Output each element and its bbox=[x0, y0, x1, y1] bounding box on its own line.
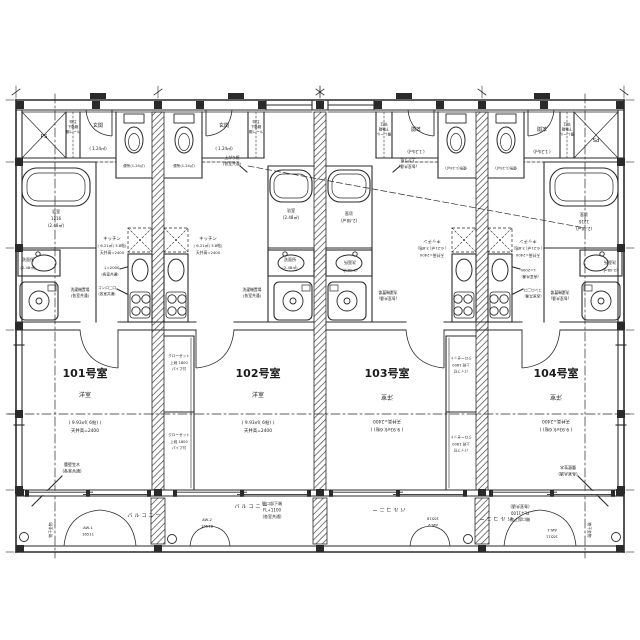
u102-kitchen-ceiling: 天井高=2400 bbox=[196, 250, 221, 255]
sill-note-right-line1: 開口部下端 bbox=[510, 517, 530, 523]
u104-bath-area: (2.48㎡) bbox=[576, 226, 592, 232]
u102-wash-name: 洗面所 bbox=[284, 256, 296, 262]
window-tag-aw1-left: AW-1 bbox=[83, 525, 93, 530]
u104-toilet-label: 便所(1.24㎡) bbox=[495, 166, 517, 171]
sill-note-right-line3: (各室共通) bbox=[510, 504, 530, 510]
unit102-room-type: 洋室 bbox=[252, 391, 264, 399]
u102-toilet-label: 便所(1.24㎡) bbox=[173, 163, 195, 168]
u101-kitchen-area: ( 6.21㎡( 3.8帖) bbox=[98, 243, 127, 248]
agari-note-left-line1: 上がり框 bbox=[224, 155, 239, 160]
u103-bath-area: (2.48㎡) bbox=[341, 218, 357, 224]
unit104-room-type: 洋室 bbox=[550, 393, 562, 401]
u103-shoebox-line3: 棚レール bbox=[376, 132, 391, 137]
unit103-number: 103号室 bbox=[365, 366, 410, 380]
parapet-note-right-line2: (各室共通) bbox=[558, 472, 578, 478]
u102-entry-area: ( 1.24㎡) bbox=[215, 145, 233, 151]
stove-right-line1: コンロ二口 bbox=[524, 288, 542, 292]
unit101-room-type: 洋室 bbox=[79, 391, 91, 399]
closet-right-lower-line1: クローゼット bbox=[450, 435, 472, 440]
unit101-room-ceiling: 天井高=2400 bbox=[71, 427, 99, 434]
closet-right-lower-line2: 上段 1800 bbox=[452, 442, 470, 447]
closet-right-lower-line3: パイプ付 bbox=[453, 448, 468, 453]
window-tag-aw2-right-size: 16518 bbox=[426, 517, 439, 522]
u102-bath-name: 浴室 bbox=[287, 207, 295, 214]
closet-right-upper-line2: 上段 1800 bbox=[452, 363, 470, 368]
u102-shoebox-line3: 棚レール bbox=[249, 129, 264, 134]
agari-note-left-line2: (各室共通) bbox=[223, 161, 242, 166]
u103-kitchen-name: キッチン bbox=[423, 238, 441, 244]
u104-kitchen-area: ( 6.21㎡( 3.8帖) bbox=[513, 246, 542, 251]
stove-left-line2: (各室共通) bbox=[98, 291, 116, 296]
u101-kitchen-name: キッチン bbox=[103, 236, 121, 242]
sill-note-right-line2: FL+1100 bbox=[511, 511, 530, 516]
unit102-room-ceiling: 天井高=2400 bbox=[244, 427, 272, 434]
unit102-number: 102号室 bbox=[236, 366, 281, 380]
closet-right-upper-line3: パイプ付 bbox=[453, 369, 468, 374]
counter-left-length: L=2000 bbox=[105, 265, 121, 270]
unit103-room-type: 洋室 bbox=[381, 393, 393, 401]
closet-left-upper-line2: 上段 1800 bbox=[170, 360, 188, 365]
unit104-number: 104号室 bbox=[534, 366, 579, 380]
sill-note-left-line3: (各室共通) bbox=[262, 513, 282, 519]
u102-kitchen-area: ( 6.21㎡( 3.8帖) bbox=[194, 243, 223, 248]
u103-laundry-line2: (各室共通) bbox=[378, 296, 397, 301]
u101-laundry-line2: (各室共通) bbox=[71, 293, 90, 298]
u104-laundry-line2: (各室共通) bbox=[550, 296, 569, 301]
closet-left-upper-line1: クローゼット bbox=[168, 353, 190, 358]
u103-entry-area: ( 1.24㎡) bbox=[407, 149, 425, 155]
u103-wash-name: 洗面所 bbox=[344, 260, 356, 266]
closet-left-upper-line3: パイプ付 bbox=[172, 366, 187, 371]
u101-shoebox-line2: 下駄箱 bbox=[68, 124, 79, 129]
closet-left-lower-line3: パイプ付 bbox=[172, 445, 187, 450]
counter-right-length: L=2000 bbox=[520, 268, 536, 273]
u104-bath-size: 1216 bbox=[578, 219, 589, 224]
u104-shoebox-line1: 特注 bbox=[563, 122, 571, 127]
unit101-room-area: ( 9.93㎡( 6帖) ) bbox=[69, 419, 102, 426]
u101-kitchen-ceiling: 天井高=2400 bbox=[100, 250, 125, 255]
u101-bath-area: (2.48㎡) bbox=[48, 222, 64, 228]
laundry-pole-note-left: 物干金物 bbox=[48, 522, 53, 537]
u101-shoebox-line3: 棚レール bbox=[66, 129, 81, 134]
unit103-room-ceiling: 天井高=2400 bbox=[373, 418, 401, 425]
u104-wash-area: (2.48㎡) bbox=[602, 268, 618, 273]
parapet-note-left-line2: (各室共通) bbox=[62, 468, 82, 474]
u102-laundry-line2: (各室共通) bbox=[243, 293, 262, 298]
u103-bath-name: 浴室 bbox=[345, 210, 353, 217]
unit102-room-area: ( 9.93㎡( 6帖) ) bbox=[242, 419, 275, 426]
window-tag-aw2-left-size: 16518 bbox=[201, 524, 214, 529]
u102-shoebox-line1: 特注 bbox=[252, 119, 260, 124]
agari-note-right-line1: 上がり框 bbox=[400, 158, 415, 163]
balcony-label-1: バルコニー bbox=[128, 513, 163, 519]
u104-wash-name: 洗面所 bbox=[604, 260, 616, 266]
closet-left-lower-line2: 上段 1800 bbox=[170, 439, 188, 444]
u103-kitchen-area: ( 6.21㎡( 3.8帖) bbox=[417, 246, 446, 251]
balcony-label-3: バルコニー bbox=[371, 506, 406, 512]
u103-toilet-label: 便所(1.24㎡) bbox=[445, 166, 467, 171]
u101-entry-area: ( 1.24㎡) bbox=[89, 145, 107, 151]
u103-shoebox-line1: 特注 bbox=[380, 122, 388, 127]
stove-right-line2: (各室共通) bbox=[524, 294, 542, 299]
parapet-note-right-line1: 腰壁笠木 bbox=[560, 465, 576, 471]
balcony-label-4: バルコニー bbox=[478, 515, 513, 521]
closet-right-upper-line1: クローゼット bbox=[450, 356, 472, 361]
u104-kitchen-ceiling: 天井高=2400 bbox=[515, 253, 540, 258]
window-tag-aw1-right-size: 16511 bbox=[545, 535, 558, 540]
u104-shoebox-line2: 下駄箱 bbox=[561, 127, 572, 132]
u103-entry-label: 玄関 bbox=[411, 125, 421, 132]
u104-entry-label: 玄関 bbox=[537, 125, 547, 132]
u101-wash-area: (2.48㎡) bbox=[20, 265, 36, 270]
u102-wash-area: (2.48㎡) bbox=[282, 265, 298, 270]
unit104-room-area: ( 9.93㎡( 6帖) ) bbox=[540, 426, 573, 433]
stove-left-line1: コンロ二口 bbox=[98, 286, 116, 290]
u103-wash-area: (2.48㎡) bbox=[342, 268, 358, 273]
u104-bath-name: 浴室 bbox=[580, 211, 588, 218]
unit101-number: 101号室 bbox=[63, 366, 108, 380]
u101-ps-label: PS bbox=[41, 134, 48, 140]
counter-right-note: (各室共通) bbox=[521, 275, 539, 280]
window-tag-aw2-left: AW-2 bbox=[202, 517, 212, 522]
u104-ps-label: PS bbox=[592, 136, 599, 142]
window-tag-aw1-left-size: 16511 bbox=[82, 532, 95, 537]
u102-entry-label: 玄関 bbox=[219, 122, 229, 129]
u103-kitchen-ceiling: 天井高=2400 bbox=[419, 253, 444, 258]
window-tag-aw2-right: AW-2 bbox=[428, 523, 438, 528]
u102-laundry-line1: 洗濯機置場 bbox=[243, 287, 262, 292]
closet-left-lower-line1: クローゼット bbox=[168, 432, 190, 437]
u101-toilet-label: 便所(1.24㎡) bbox=[123, 163, 145, 168]
agari-note-right-line2: (各室共通) bbox=[398, 164, 417, 169]
u101-shoebox-line1: 特注 bbox=[69, 119, 77, 124]
u101-bath-name: 浴室 bbox=[52, 208, 60, 215]
unit103-room-area: ( 9.93㎡( 6帖) ) bbox=[371, 426, 404, 433]
u102-shoebox-line2: 下駄箱 bbox=[251, 124, 262, 129]
u101-wash-name: 洗面所 bbox=[22, 256, 34, 262]
unit104-room-ceiling: 天井高=2400 bbox=[542, 418, 570, 425]
floor-plan-page: PS特注下駄箱棚レール玄関( 1.24㎡)便所(1.24㎡)便所(1.24㎡)玄… bbox=[0, 0, 640, 640]
u101-laundry-line1: 洗濯機置場 bbox=[71, 287, 90, 292]
window-tag-aw1-right: AW-1 bbox=[547, 528, 557, 533]
floor-plan-drawing: PS特注下駄箱棚レール玄関( 1.24㎡)便所(1.24㎡)便所(1.24㎡)玄… bbox=[0, 0, 640, 640]
sill-note-left-line2: FL+1100 bbox=[263, 508, 282, 513]
u101-bath-size: 1216 bbox=[51, 216, 62, 221]
u104-shoebox-line3: 棚レール bbox=[559, 132, 574, 137]
u104-laundry-line1: 洗濯機置場 bbox=[550, 290, 569, 295]
u102-kitchen-name: キッチン bbox=[199, 236, 217, 242]
counter-left-note: (各室共通) bbox=[101, 272, 119, 277]
parapet-note-left-line1: 腰壁笠木 bbox=[64, 461, 80, 467]
u102-bath-area: (2.48㎡) bbox=[283, 214, 299, 220]
u103-laundry-line1: 洗濯機置場 bbox=[378, 290, 397, 295]
sill-note-left-line1: 開口部下端 bbox=[262, 500, 282, 506]
u103-shoebox-line2: 下駄箱 bbox=[378, 127, 389, 132]
laundry-pole-note-right: 物干金物 bbox=[587, 522, 592, 537]
u101-entry-label: 玄関 bbox=[93, 122, 103, 129]
u104-kitchen-name: キッチン bbox=[519, 238, 537, 244]
u104-entry-area: ( 1.24㎡) bbox=[533, 149, 551, 155]
